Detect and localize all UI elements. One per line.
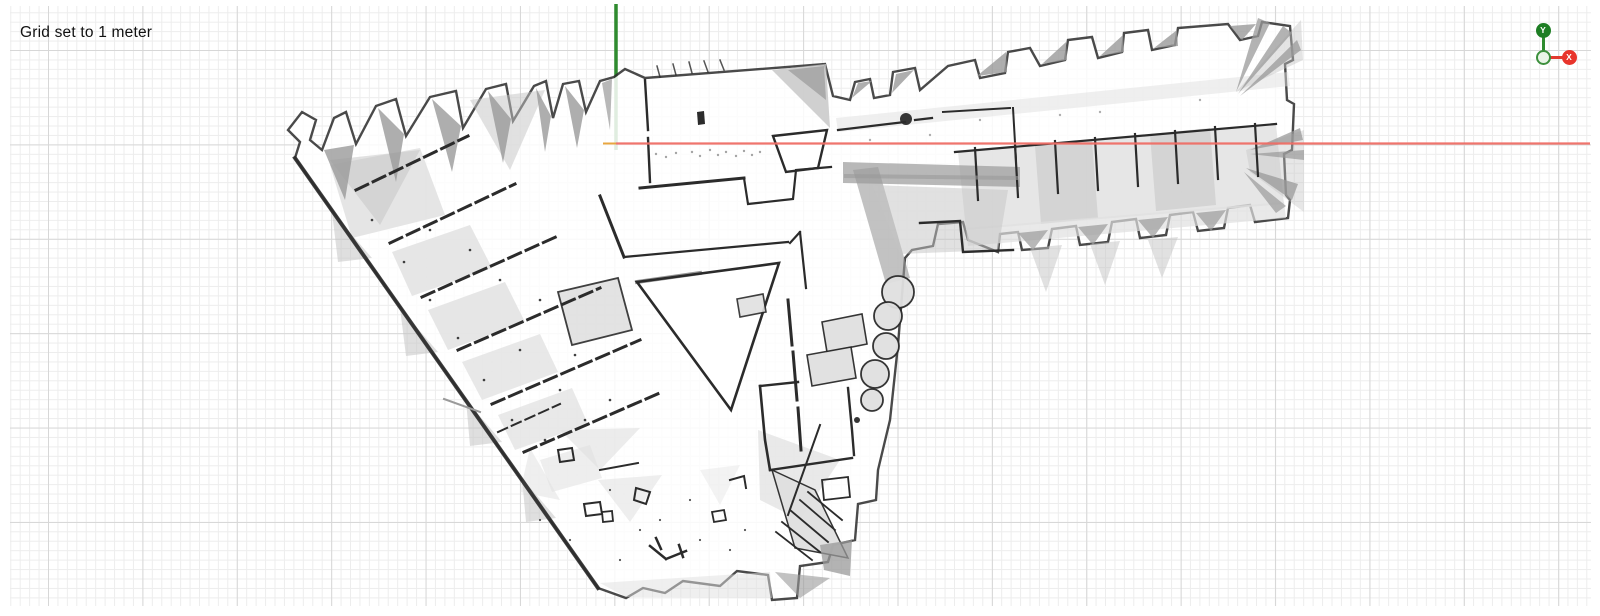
gizmo-y-handle[interactable]: Y	[1536, 23, 1551, 38]
grid-status-label: Grid set to 1 meter	[20, 24, 152, 42]
axis-gizmo[interactable]: Y X	[1522, 16, 1584, 70]
gizmo-x-handle[interactable]: X	[1562, 50, 1577, 65]
gizmo-x-label: X	[1566, 53, 1572, 62]
scene-svg	[0, 0, 1600, 616]
gizmo-origin-handle[interactable]	[1536, 50, 1551, 65]
gizmo-y-label: Y	[1540, 26, 1546, 35]
map-viewport[interactable]: Grid set to 1 meter Y X	[0, 0, 1600, 616]
occupancy-map	[288, 18, 1304, 600]
